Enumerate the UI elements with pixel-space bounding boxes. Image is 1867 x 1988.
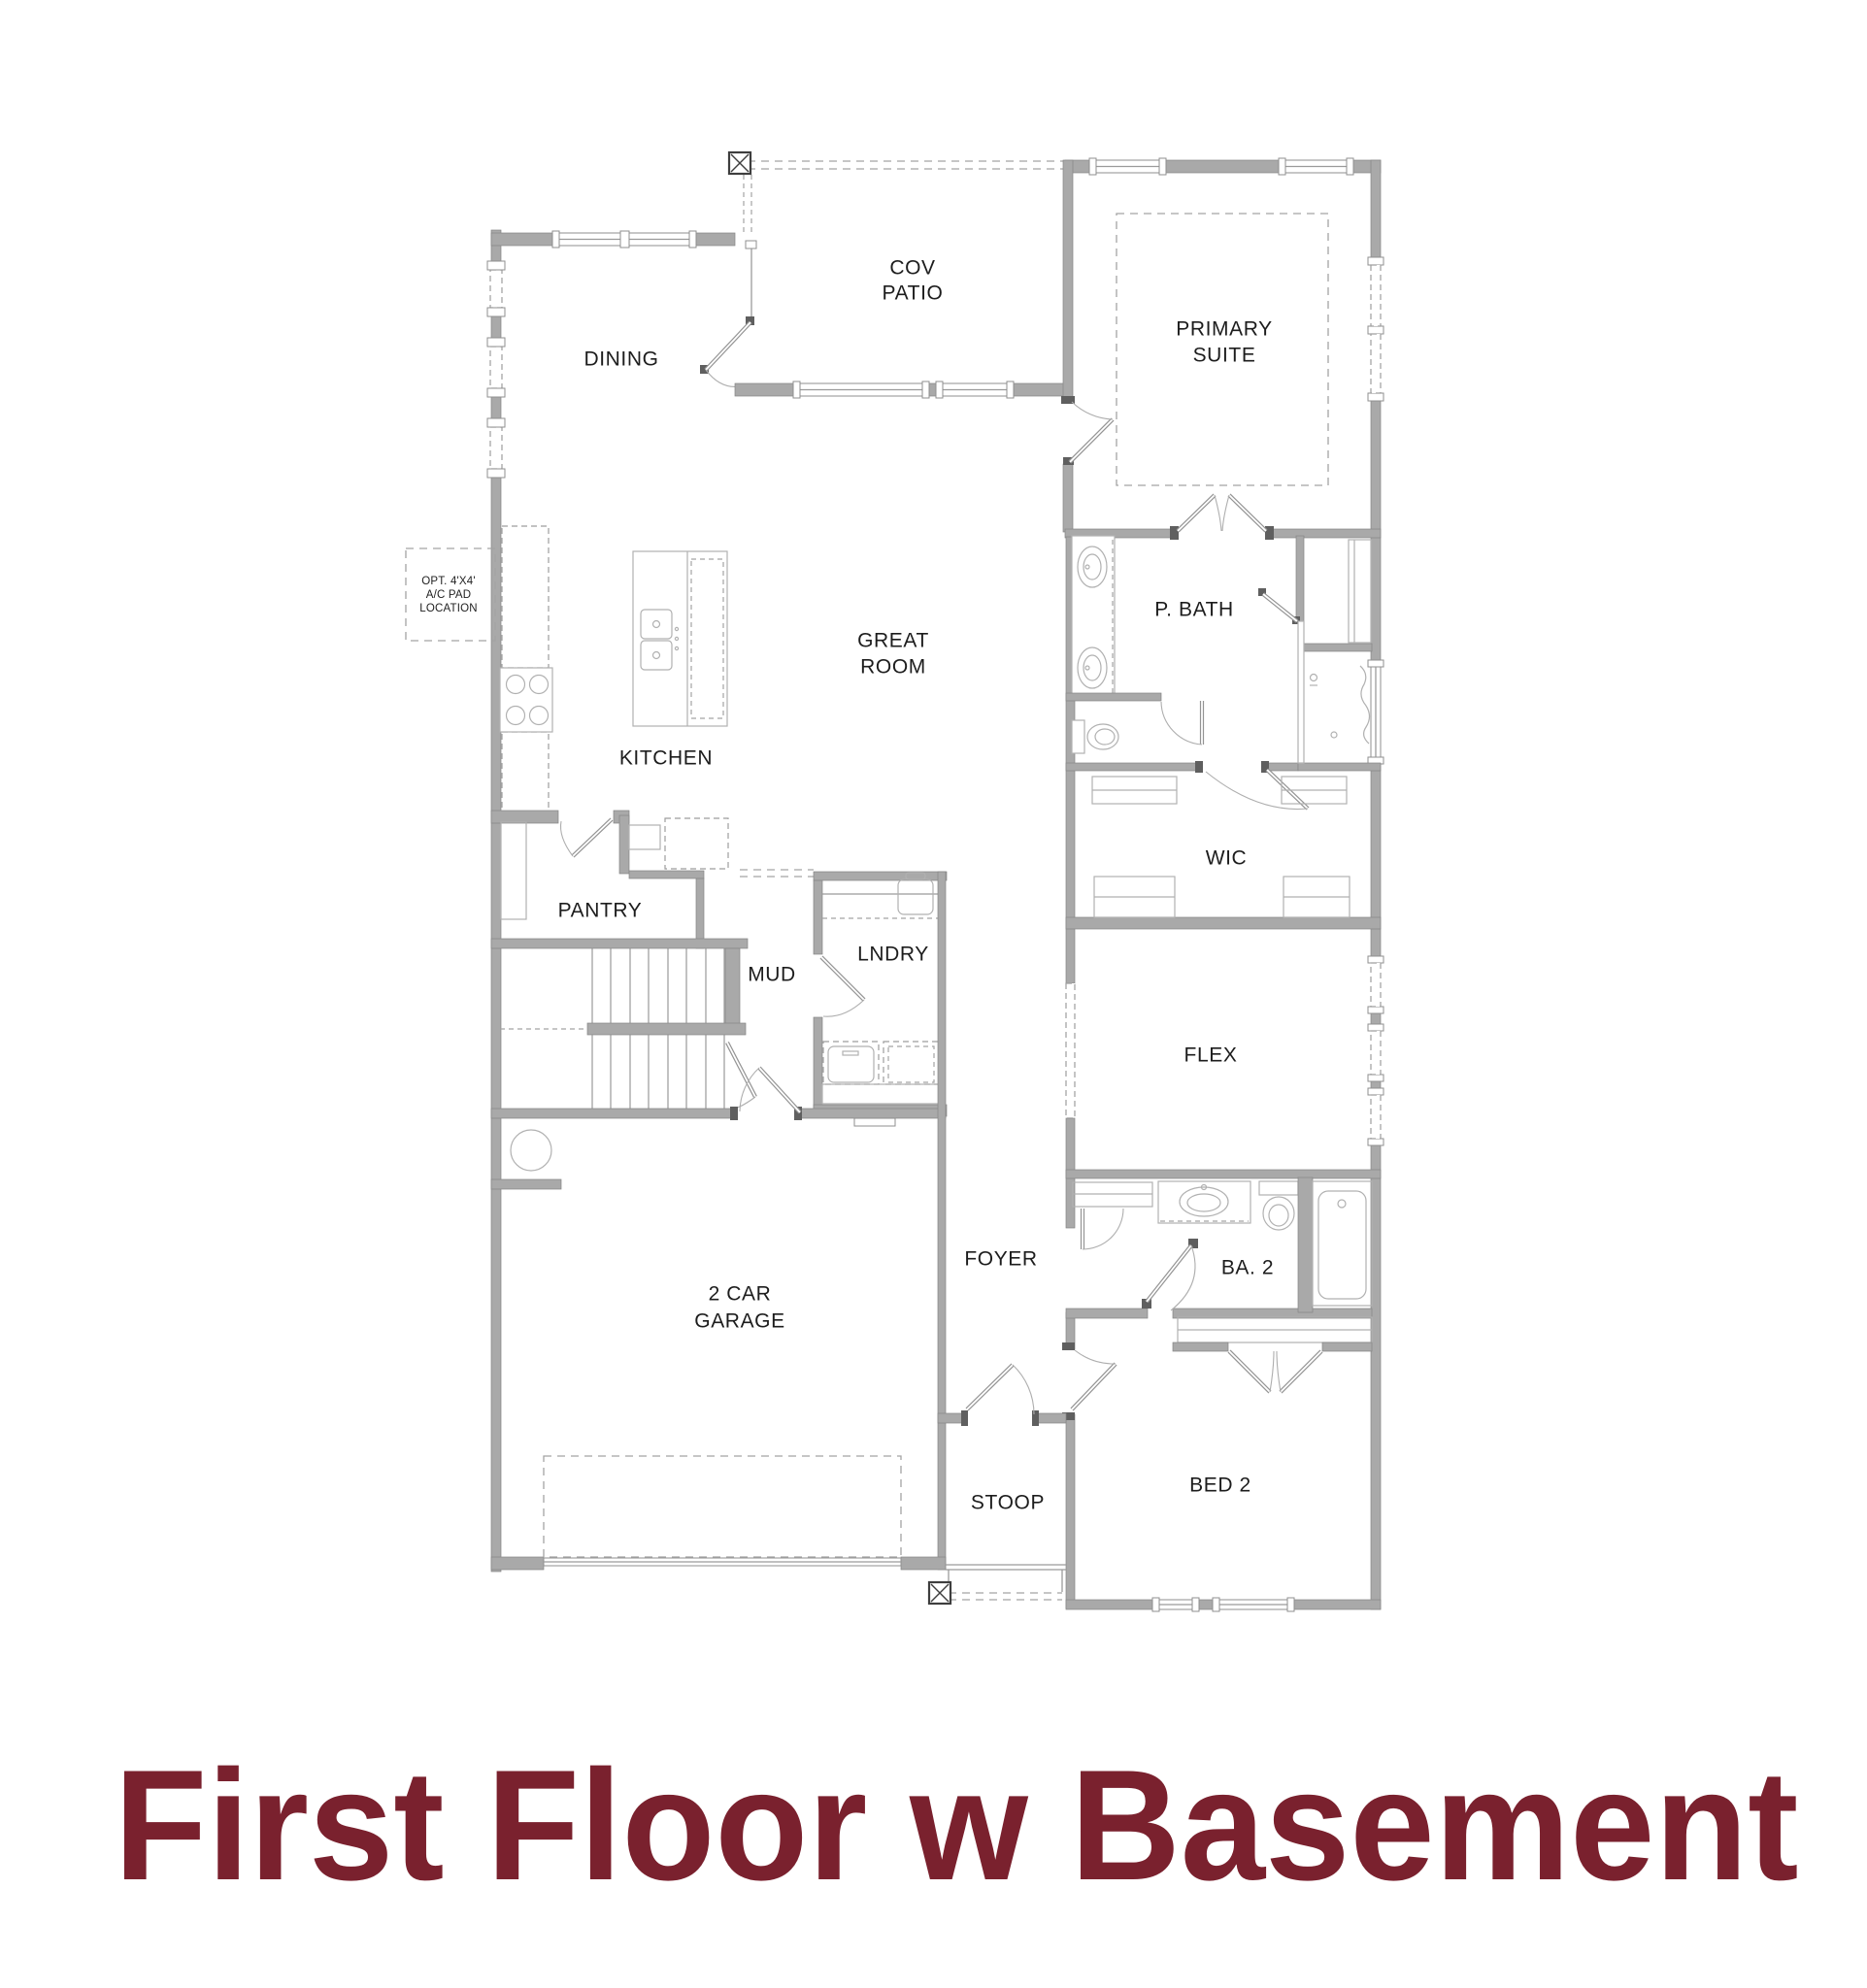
room-label-foyer: FOYER: [964, 1248, 1037, 1271]
optional-window: [1371, 1095, 1381, 1139]
room-label-mud: MUD: [748, 964, 796, 986]
pantry-door: [561, 819, 613, 856]
water-heater-icon: [511, 1130, 551, 1171]
dining-window: [552, 231, 696, 248]
garage-entry-door: [730, 1068, 802, 1120]
coat-closet: [1073, 1182, 1152, 1249]
walls-right-wing: [1061, 158, 1384, 1611]
driveway-apron: [544, 1456, 901, 1557]
optional-window: [1371, 963, 1381, 1007]
stairs: [491, 939, 755, 1110]
optional-window: [490, 270, 502, 308]
room-label-p-bath: P. BATH: [1154, 599, 1234, 621]
room-label-cov-patio-1: COV: [889, 257, 935, 280]
cabinet: [629, 825, 660, 849]
closet-shelf: [1284, 877, 1350, 917]
closet-shelf: [1094, 877, 1175, 917]
room-label-dining: DINING: [583, 348, 658, 371]
closet-shelf: [1282, 777, 1347, 804]
closet-shelf: [1092, 777, 1177, 804]
bed2-entry-door: [1062, 1342, 1116, 1420]
ba2-door: [1142, 1239, 1198, 1310]
refrigerator: [665, 818, 728, 869]
room-label-cov-patio-2: PATIO: [883, 282, 944, 305]
toilet-icon: [1259, 1181, 1298, 1230]
room-label-wic: WIC: [1206, 847, 1248, 870]
wc-door: [1161, 701, 1202, 745]
optional-window: [1371, 1031, 1381, 1075]
primary-bath: [1066, 536, 1372, 763]
room-label-lndry: LNDRY: [857, 944, 929, 966]
ac-note-line2: A/C PAD: [426, 589, 472, 601]
optional-window: [1371, 334, 1381, 393]
stair-treads-upper: [592, 948, 724, 1023]
laundry-pedestal: [822, 1084, 939, 1104]
optional-window: [490, 347, 502, 388]
room-label-great-room-1: GREAT: [857, 630, 929, 652]
kitchen-area: [491, 526, 728, 948]
room-label-ba2: BA. 2: [1221, 1257, 1274, 1279]
hall-ba2: [1073, 1177, 1372, 1312]
stoop-post-icon: [929, 1582, 950, 1604]
room-label-garage-2: GARAGE: [694, 1310, 784, 1333]
washer-icon: [823, 1042, 879, 1084]
range-icon: [500, 668, 552, 732]
room-label-garage-1: 2 CAR: [709, 1283, 772, 1306]
utility-sink-icon: [898, 879, 933, 914]
optional-window: [490, 427, 502, 469]
bed2-window: [1152, 1598, 1294, 1611]
stair-treads-lower: [592, 1035, 724, 1109]
room-label-pantry: PANTRY: [558, 900, 643, 922]
pantry-shelf: [501, 822, 526, 919]
shower-door: [1258, 588, 1300, 624]
room-label-kitchen: KITCHEN: [619, 747, 713, 770]
optional-window: [1371, 265, 1381, 326]
bath-double-doors: [1170, 495, 1274, 540]
dryer-icon: [883, 1042, 939, 1084]
page-title: First Floor w Basement: [115, 1738, 1799, 1913]
kitchen-counter: [502, 732, 549, 815]
floor-plan-page: OPT. 4'X4' A/C PAD LOCATION DINING COV P…: [0, 0, 1867, 1988]
island-sink-icon: [641, 610, 679, 670]
ba2-vanity: [1158, 1181, 1250, 1223]
room-label-stoop: STOOP: [971, 1492, 1045, 1514]
toilet-icon: [1072, 720, 1118, 753]
ac-pad-note: OPT. 4'X4' A/C PAD LOCATION: [406, 548, 495, 641]
ac-note-line3: LOCATION: [419, 603, 478, 614]
kitchen-counter: [502, 526, 549, 668]
room-label-great-room-2: ROOM: [860, 656, 926, 679]
ac-note-line1: OPT. 4'X4': [421, 576, 476, 587]
patio-post-icon: [729, 152, 750, 174]
laundry-door: [821, 957, 864, 1016]
floor-plan-drawing: OPT. 4'X4' A/C PAD LOCATION DINING COV P…: [0, 0, 1867, 1988]
room-labels: DINING COV PATIO PRIMARY SUITE GREAT ROO…: [558, 257, 1275, 1514]
room-label-primary-suite-2: SUITE: [1193, 345, 1256, 367]
kitchen-island: [633, 551, 727, 726]
room-label-bed2: BED 2: [1189, 1474, 1251, 1497]
bathtub-icon: [1313, 1181, 1372, 1306]
front-door: [961, 1365, 1039, 1426]
bed2-closet: [1173, 1317, 1372, 1392]
dining-patio-door: [700, 316, 754, 386]
optional-opening: [1066, 983, 1075, 1118]
patio-window: [793, 381, 1014, 398]
bed2-room: [1062, 1317, 1372, 1420]
garage: [491, 872, 946, 1570]
suite-entry-door: [1061, 396, 1113, 465]
room-label-flex: FLEX: [1184, 1044, 1238, 1067]
linen-shelves: [1349, 540, 1371, 643]
mud-laundry: [740, 870, 947, 1126]
room-label-primary-suite-1: PRIMARY: [1176, 318, 1273, 341]
garage-door: [544, 1456, 901, 1566]
foyer-stoop: [929, 1365, 1066, 1604]
